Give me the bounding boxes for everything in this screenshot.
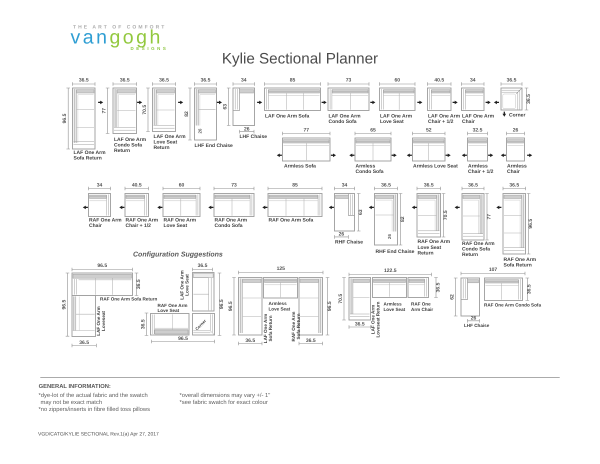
svg-text:36.5: 36.5 (355, 322, 365, 328)
svg-text:125: 125 (277, 266, 286, 272)
svg-text:Condo Sofa: Condo Sofa (329, 119, 357, 125)
svg-text:36.5: 36.5 (79, 77, 89, 83)
svg-text:Chair: Chair (507, 169, 520, 175)
svg-text:36.5: 36.5 (507, 77, 517, 83)
svg-text:34: 34 (342, 183, 348, 189)
svg-text:RAF One Arm Sofa: RAF One Arm Sofa (269, 218, 314, 224)
svg-text:VGD/CATG/KYLIE SECTIONAL Rev.1: VGD/CATG/KYLIE SECTIONAL Rev.1(a) Apr 27… (38, 432, 159, 438)
svg-text:60: 60 (394, 77, 400, 83)
svg-text:Love Seat: Love Seat (384, 307, 406, 312)
svg-text:36.5: 36.5 (159, 77, 169, 83)
svg-text:Condo Sofa: Condo Sofa (356, 169, 384, 175)
svg-text:36.5: 36.5 (141, 319, 147, 329)
svg-text:82: 82 (400, 216, 406, 222)
svg-text:26: 26 (197, 128, 202, 133)
svg-text:LHF Chaise: LHF Chaise (240, 134, 268, 140)
svg-text:Chair: Chair (462, 119, 475, 125)
svg-text:Sofa Return: Sofa Return (74, 156, 102, 162)
svg-text:26: 26 (387, 234, 392, 239)
svg-text:Sofa Return: Sofa Return (296, 313, 301, 339)
svg-text:Armless Love Seat: Armless Love Seat (413, 163, 458, 169)
svg-text:60: 60 (179, 183, 185, 189)
svg-text:*no zippers/inserts in fibre f: *no zippers/inserts in fibre filled toss… (39, 406, 151, 413)
svg-text:GENERAL INFORMATION:: GENERAL INFORMATION: (39, 383, 111, 390)
svg-text:96.5: 96.5 (62, 300, 68, 310)
svg-text:Armless: Armless (384, 302, 403, 307)
svg-text:Condo Sofa: Condo Sofa (215, 223, 243, 229)
svg-text:70.5: 70.5 (443, 210, 449, 220)
svg-text:Sofa Return: Sofa Return (504, 263, 532, 269)
svg-text:63: 63 (223, 104, 229, 110)
svg-text:Return: Return (462, 252, 478, 258)
svg-text:96.5: 96.5 (219, 299, 225, 309)
svg-text:Love Seat: Love Seat (164, 223, 188, 229)
svg-text:DESIGNS: DESIGNS (131, 46, 169, 51)
svg-text:*dye-lot of the actual fabric: *dye-lot of the actual fabric and the sw… (39, 392, 148, 399)
svg-text:may not be exact match: may not be exact match (41, 399, 103, 406)
svg-text:Return: Return (154, 145, 170, 151)
svg-text:34: 34 (241, 77, 247, 83)
svg-text:96.5: 96.5 (178, 336, 188, 342)
svg-text:77: 77 (303, 128, 309, 134)
svg-text:36.5: 36.5 (424, 183, 434, 189)
svg-text:52: 52 (426, 128, 432, 134)
svg-text:36.5: 36.5 (435, 282, 441, 292)
svg-text:LAF One Arm Sofa: LAF One Arm Sofa (265, 113, 309, 119)
svg-text:65: 65 (370, 128, 376, 134)
svg-text:Love Seat: Love Seat (158, 308, 180, 313)
svg-text:70.5: 70.5 (142, 105, 148, 115)
svg-text:RHF End Chaise: RHF End Chaise (376, 249, 415, 255)
svg-text:Love Seat: Love Seat (185, 274, 190, 296)
svg-text:Chair + 1/2: Chair + 1/2 (468, 169, 494, 175)
svg-text:*see fabric swatch for exact c: *see fabric swatch for exact colour (180, 399, 268, 406)
svg-text:73: 73 (231, 183, 237, 189)
svg-text:RAF One: RAF One (411, 302, 431, 307)
svg-text:RAF One Arm: RAF One Arm (158, 303, 188, 308)
svg-text:96.5: 96.5 (97, 263, 107, 269)
svg-text:36.5: 36.5 (198, 263, 208, 269)
svg-text:70.5: 70.5 (338, 294, 344, 304)
svg-text:RAF One Arm Condo Sofa: RAF One Arm Condo Sofa (484, 302, 541, 307)
svg-text:36.5: 36.5 (381, 183, 391, 189)
svg-text:36.5: 36.5 (201, 77, 211, 83)
svg-text:Loveseat Return: Loveseat Return (375, 301, 380, 337)
svg-text:77: 77 (486, 214, 492, 220)
svg-text:Love Seat: Love Seat (269, 306, 291, 311)
svg-text:82: 82 (184, 111, 190, 117)
svg-text:Loveseat: Loveseat (101, 311, 106, 331)
svg-text:Armless: Armless (269, 301, 288, 306)
svg-text:36.5: 36.5 (120, 77, 130, 83)
svg-text:32.5: 32.5 (473, 128, 483, 134)
svg-text:Arm Chair: Arm Chair (411, 307, 433, 312)
svg-text:Chair + 1/2: Chair + 1/2 (126, 223, 152, 229)
svg-text:Corner: Corner (509, 113, 525, 119)
svg-text:36.5: 36.5 (527, 284, 533, 294)
svg-text:RAF One Arm Sofa Return: RAF One Arm Sofa Return (100, 296, 157, 301)
svg-text:Chair: Chair (89, 223, 102, 229)
svg-text:107: 107 (489, 267, 498, 273)
svg-text:Armless Sofa: Armless Sofa (284, 163, 316, 169)
svg-text:62: 62 (450, 294, 456, 300)
svg-text:RHF Chaise: RHF Chaise (335, 240, 363, 246)
svg-text:36.5: 36.5 (79, 340, 89, 346)
svg-text:26: 26 (339, 232, 345, 238)
svg-text:40.5: 40.5 (132, 183, 142, 189)
svg-text:63: 63 (358, 209, 364, 215)
svg-text:34: 34 (470, 77, 476, 83)
svg-text:77: 77 (102, 108, 108, 114)
svg-text:40.5: 40.5 (434, 77, 444, 83)
svg-text:Return: Return (114, 148, 130, 154)
svg-text:96.5: 96.5 (327, 301, 333, 311)
svg-text:LHF Chaise: LHF Chaise (464, 323, 490, 328)
svg-text:34: 34 (97, 183, 103, 189)
svg-text:26: 26 (471, 315, 477, 321)
svg-text:96.5: 96.5 (62, 113, 68, 123)
svg-text:36.5: 36.5 (526, 94, 532, 104)
svg-text:96.5: 96.5 (528, 219, 534, 229)
svg-text:85: 85 (292, 183, 298, 189)
svg-text:26: 26 (513, 128, 519, 134)
svg-text:122.5: 122.5 (384, 268, 397, 274)
svg-text:36.5: 36.5 (245, 338, 255, 344)
svg-text:*overall dimensions may vary +: *overall dimensions may vary +/- 1" (180, 392, 271, 399)
svg-text:Configuration Suggestions: Configuration Suggestions (133, 250, 223, 258)
svg-text:73: 73 (346, 77, 352, 83)
svg-text:36.5: 36.5 (136, 279, 142, 289)
svg-text:Love Seat: Love Seat (380, 119, 404, 125)
svg-text:26: 26 (244, 126, 250, 132)
svg-text:LHF End Chaise: LHF End Chaise (195, 143, 234, 149)
svg-text:85: 85 (290, 77, 296, 83)
svg-text:36.5: 36.5 (468, 183, 478, 189)
svg-text:Sofa Return: Sofa Return (268, 315, 273, 341)
svg-text:Chair + 1/2: Chair + 1/2 (428, 119, 454, 125)
svg-text:Return: Return (418, 250, 434, 256)
svg-text:Kylie Sectional Planner: Kylie Sectional Planner (222, 51, 378, 68)
svg-text:36.5: 36.5 (509, 183, 519, 189)
svg-text:96.5: 96.5 (228, 301, 234, 311)
svg-text:36.5: 36.5 (306, 338, 316, 344)
